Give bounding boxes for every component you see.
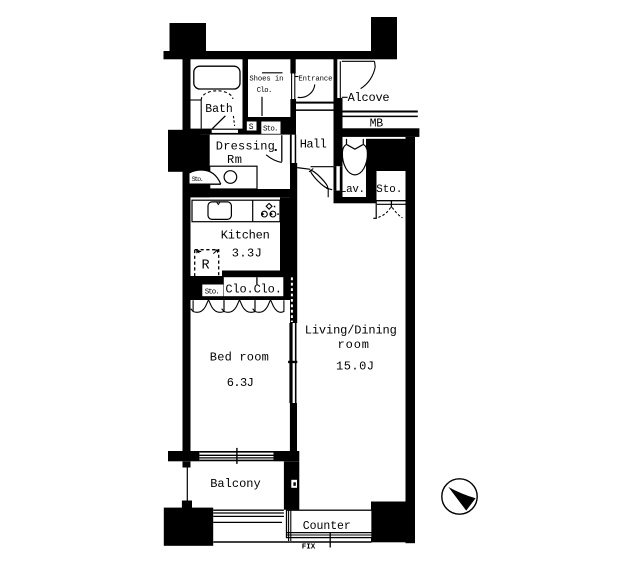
svg-text:R: R (202, 258, 210, 273)
svg-text:6.3J: 6.3J (227, 376, 254, 390)
svg-text:Bed room: Bed room (210, 351, 269, 365)
svg-text:MB: MB (370, 118, 384, 131)
svg-text:Alcove: Alcove (348, 91, 390, 105)
svg-text:room: room (338, 338, 370, 352)
svg-text:Counter: Counter (303, 520, 351, 533)
svg-text:Lav.: Lav. (340, 184, 365, 196)
svg-text:Entrance: Entrance (298, 75, 332, 83)
svg-text:FIX: FIX (302, 544, 316, 552)
svg-text:Sto.: Sto. (205, 288, 220, 296)
svg-text:Sto.: Sto. (192, 176, 204, 183)
svg-text:Dressing: Dressing (216, 139, 275, 153)
svg-text:Bath: Bath (205, 103, 233, 116)
svg-text:15.0J: 15.0J (336, 359, 374, 373)
svg-text:Sto.: Sto. (263, 125, 279, 133)
svg-text:Balcony: Balcony (210, 477, 261, 491)
svg-text:Clo.: Clo. (257, 87, 273, 95)
svg-text:S: S (249, 123, 254, 132)
svg-text:3.3J: 3.3J (232, 246, 262, 260)
svg-text:Sto.: Sto. (376, 184, 402, 196)
svg-text:Hall: Hall (300, 138, 327, 152)
svg-text:Kitchen: Kitchen (221, 228, 270, 242)
svg-text:Rm: Rm (227, 153, 242, 167)
svg-text:Shoes in: Shoes in (249, 75, 283, 83)
svg-text:Clo.Clo.: Clo.Clo. (225, 282, 282, 296)
svg-text:Living/Dining: Living/Dining (305, 323, 397, 337)
